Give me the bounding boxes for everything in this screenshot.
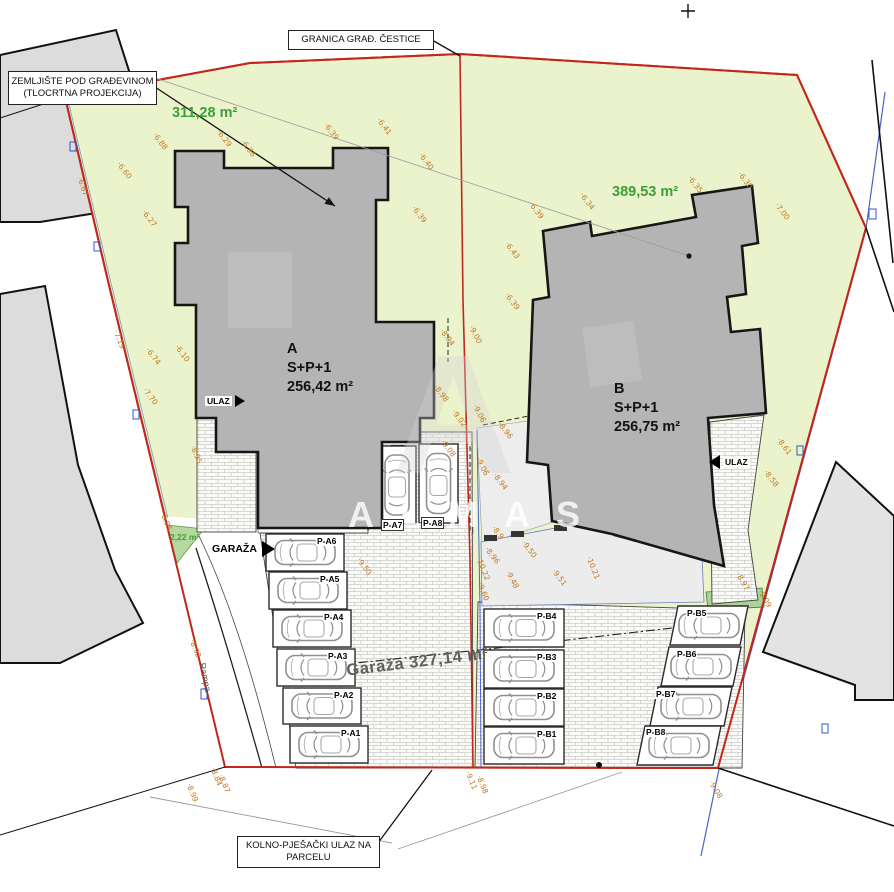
parking-stall-P-B6: [661, 647, 741, 686]
car-icon: [278, 577, 338, 605]
parking-stall-P-A1: [290, 726, 368, 763]
car-icon: [494, 614, 554, 642]
parking-stall-P-A6: [266, 534, 344, 571]
site-plan: A ALMAS ZEMLJIŠTE POD GRAĐEVINOM (TLOCRT…: [0, 0, 894, 892]
car-icon: [425, 454, 453, 514]
boundary-point: [596, 762, 602, 768]
parking-stall-P-B5: [670, 606, 748, 645]
parking-stall-P-B8: [637, 726, 721, 765]
car-icon: [671, 653, 731, 681]
parking-stall-P-A8: [419, 444, 458, 523]
car-icon: [292, 692, 352, 720]
site-plan-drawing: [0, 0, 894, 892]
building-b-roof-detail: [582, 321, 642, 388]
parking-stall-P-A4: [273, 610, 351, 647]
car-icon: [275, 539, 335, 567]
building-a-roof-detail: [228, 252, 292, 328]
parking-stall-P-A3: [277, 649, 355, 686]
car-icon: [286, 654, 346, 682]
parking-stall-P-B2: [484, 689, 564, 726]
car-icon: [494, 732, 554, 760]
parking-stall-P-B3: [484, 650, 564, 688]
car-icon: [282, 615, 342, 643]
parking-stall-P-B4: [484, 609, 564, 647]
car-icon: [649, 732, 709, 760]
car-icon: [679, 612, 739, 640]
car-icon: [383, 455, 411, 515]
car-icon: [494, 694, 554, 722]
parking-stall-P-A7: [378, 446, 416, 524]
parking-stall-P-B7: [650, 687, 732, 726]
parking-stall-P-B1: [484, 727, 564, 764]
car-icon: [299, 731, 359, 759]
parking-stall-P-A2: [283, 688, 361, 724]
car-icon: [661, 693, 721, 721]
parking-stall-P-A5: [269, 572, 347, 609]
car-icon: [494, 655, 554, 683]
